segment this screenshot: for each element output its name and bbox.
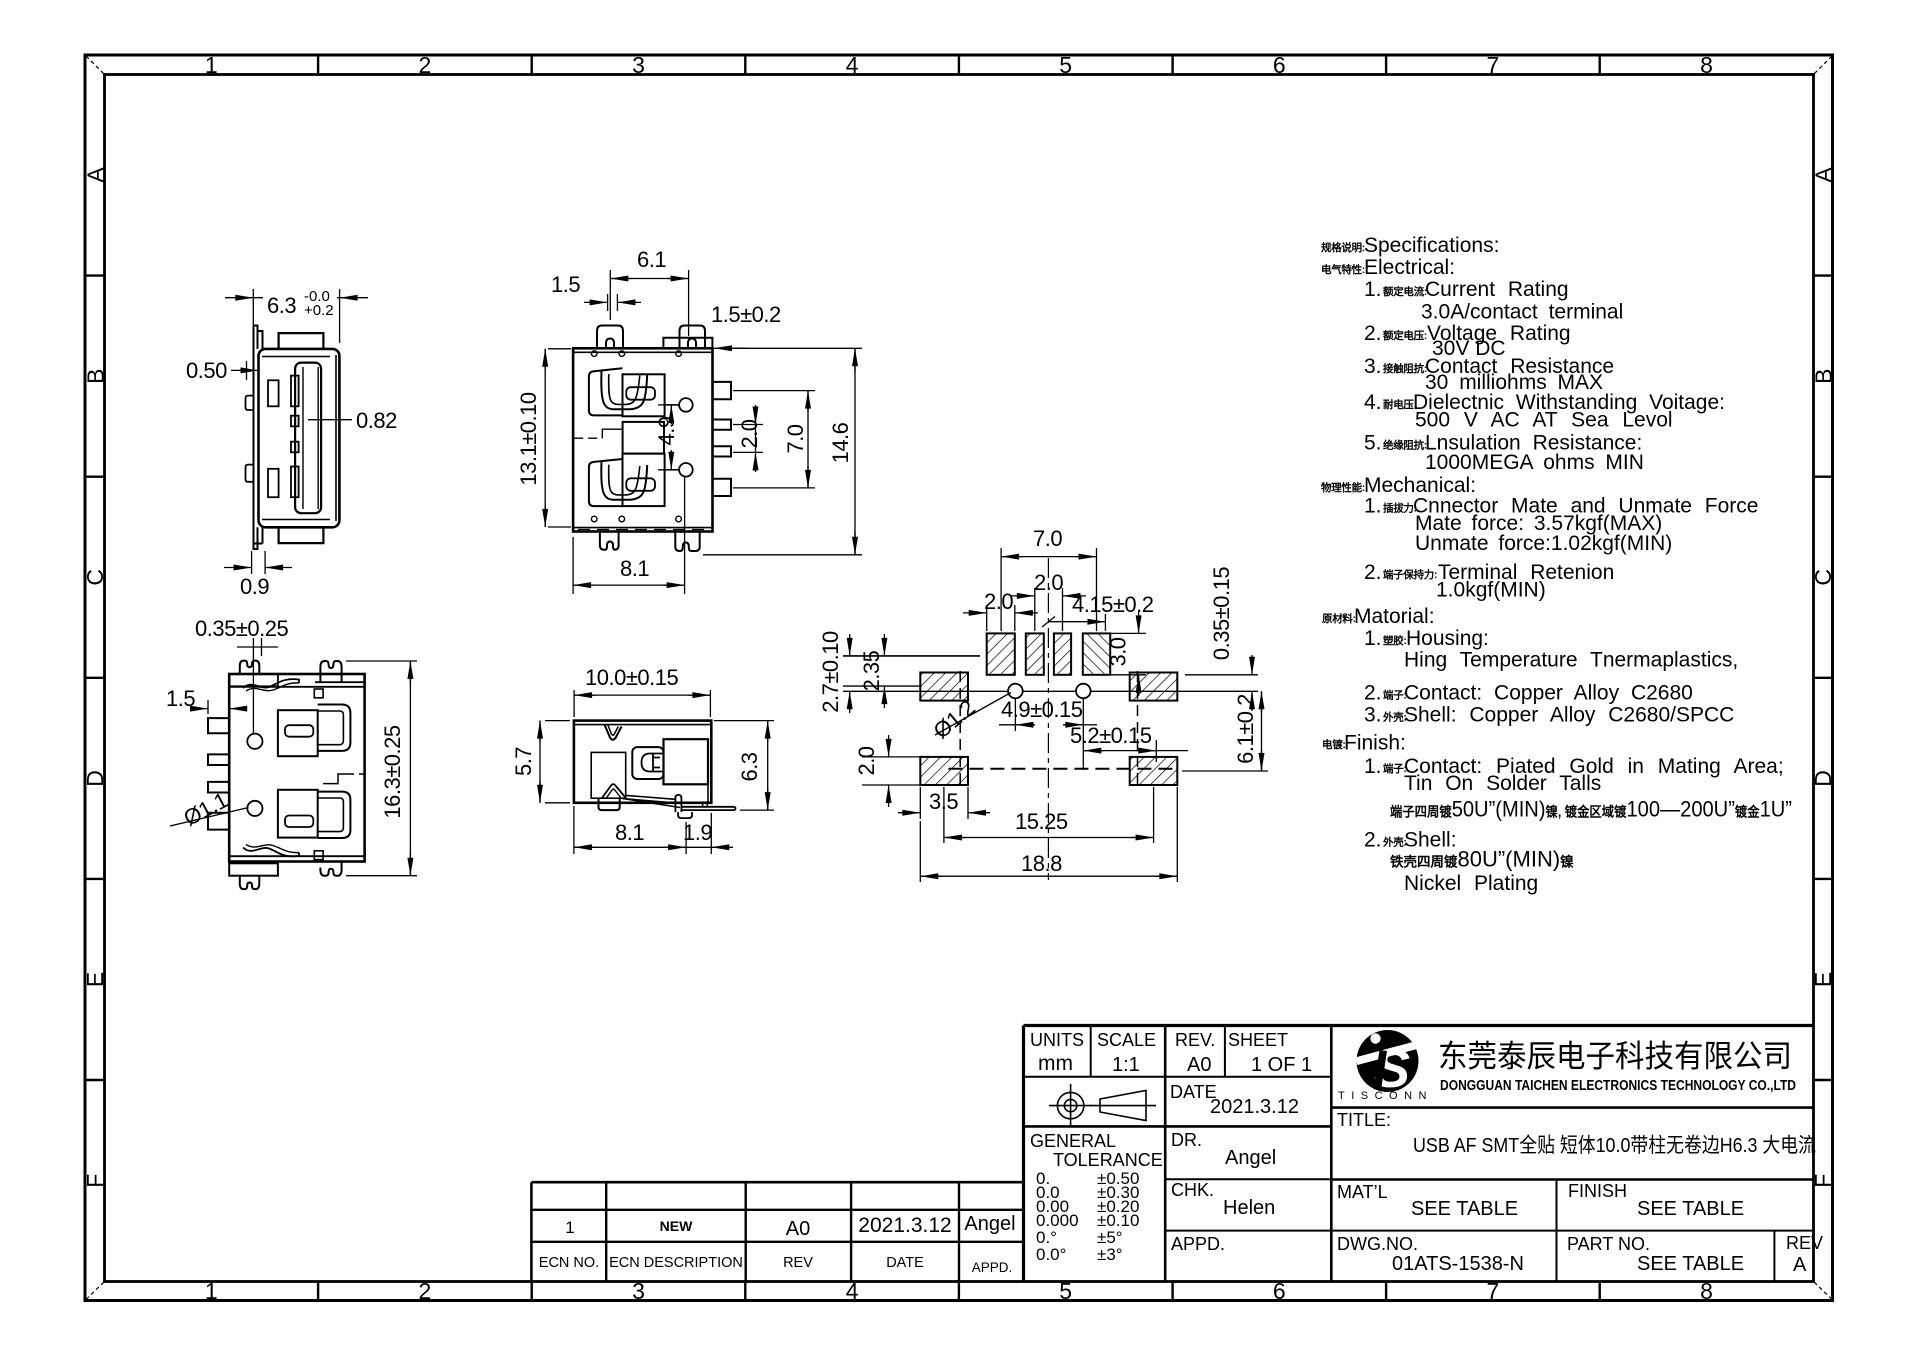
svg-text:TOLERANCE: TOLERANCE (1053, 1150, 1163, 1170)
svg-text:2.: 2. (1364, 829, 1382, 852)
svg-text:额定电压:: 额定电压: (1382, 329, 1427, 342)
svg-text:A: A (1811, 167, 1837, 183)
svg-text:TITLE:: TITLE: (1337, 1110, 1391, 1130)
svg-text:FINISH: FINISH (1568, 1181, 1627, 1201)
svg-text:DATE: DATE (886, 1255, 924, 1271)
svg-text:13.1±0.10: 13.1±0.10 (516, 392, 541, 485)
svg-text:A: A (83, 167, 109, 183)
svg-text:7.0: 7.0 (1033, 526, 1062, 551)
svg-text:插拔力:: 插拔力: (1383, 502, 1417, 515)
svg-text:REV: REV (1786, 1233, 1823, 1253)
svg-text:Tin On Solder Talls: Tin On Solder Talls (1404, 772, 1601, 795)
svg-text:2021.3.12: 2021.3.12 (858, 1214, 951, 1237)
svg-text:8.1: 8.1 (615, 820, 644, 845)
svg-text:E: E (82, 972, 108, 987)
svg-text:SEE TABLE: SEE TABLE (1637, 1253, 1744, 1275)
svg-text:4: 4 (846, 1278, 859, 1304)
svg-text:A0: A0 (1187, 1054, 1211, 1076)
svg-text:APPD.: APPD. (1171, 1234, 1225, 1254)
svg-text:电镀:: 电镀: (1322, 738, 1346, 751)
svg-text:SEE TABLE: SEE TABLE (1411, 1198, 1518, 1220)
svg-text:E: E (1810, 972, 1836, 987)
svg-text:D: D (82, 770, 108, 787)
svg-text:0.35±0.25: 0.35±0.25 (195, 616, 288, 641)
svg-text:C: C (1810, 569, 1836, 586)
svg-text:500 V AC AT Sea Levol: 500 V AC AT Sea Levol (1415, 409, 1673, 432)
svg-text:TISCONN: TISCONN (1338, 1090, 1433, 1102)
svg-text:5: 5 (1059, 1278, 1072, 1304)
svg-text:额定电流:: 额定电流: (1382, 285, 1427, 298)
svg-text:5: 5 (1059, 52, 1072, 78)
svg-text:1: 1 (565, 1218, 574, 1237)
svg-text:UNITS: UNITS (1030, 1030, 1084, 1050)
svg-text:0.82: 0.82 (356, 408, 397, 433)
svg-text:1 OF 1: 1 OF 1 (1251, 1054, 1312, 1076)
svg-text:4: 4 (846, 52, 859, 78)
svg-text:1.: 1. (1364, 495, 1382, 518)
svg-text:8.1: 8.1 (620, 556, 649, 581)
svg-text:mm: mm (1038, 1052, 1073, 1075)
svg-text:Unmate force:1.02kgf(MIN): Unmate force:1.02kgf(MIN) (1415, 532, 1672, 555)
svg-text:18.8: 18.8 (1021, 851, 1062, 876)
svg-text:2: 2 (419, 1278, 432, 1304)
svg-text:APPD.: APPD. (972, 1260, 1013, 1275)
svg-text:2.0: 2.0 (737, 419, 762, 448)
svg-text:Hing Temperature Tnermaplasti: Hing Temperature Tnermaplastics, (1404, 649, 1738, 672)
svg-text:A0: A0 (786, 1218, 810, 1240)
svg-text:Shell: Copper Alloy C2680/SPC: Shell: Copper Alloy C2680/SPCC (1404, 704, 1734, 727)
svg-text:4.9: 4.9 (654, 416, 679, 445)
svg-text:REV.: REV. (1175, 1030, 1215, 1050)
svg-text:2.: 2. (1364, 561, 1382, 584)
svg-text:Nickel Plating: Nickel Plating (1404, 872, 1538, 895)
svg-text:2.: 2. (1364, 322, 1382, 345)
svg-text:15.25: 15.25 (1015, 809, 1068, 834)
svg-text:3.0: 3.0 (1106, 637, 1131, 666)
svg-text:14.6: 14.6 (828, 422, 853, 463)
svg-text:A: A (1793, 1254, 1807, 1276)
svg-text:7: 7 (1487, 1278, 1500, 1304)
svg-text:DONGGUAN TAICHEN ELECTRONICS T: DONGGUAN TAICHEN ELECTRONICS TECHNOLOGY … (1440, 1078, 1796, 1094)
svg-text:16.3±0.25: 16.3±0.25 (380, 725, 405, 818)
svg-text:1:1: 1:1 (1112, 1054, 1140, 1076)
svg-text:0.9: 0.9 (240, 574, 269, 599)
svg-text:ECN DESCRIPTION: ECN DESCRIPTION (609, 1255, 743, 1271)
svg-text:端子保持力:: 端子保持力: (1383, 568, 1437, 581)
svg-text:电气特性:: 电气特性: (1321, 263, 1365, 276)
svg-text:6.1: 6.1 (637, 247, 666, 272)
svg-text:Angel: Angel (1225, 1147, 1276, 1169)
svg-text:3.: 3. (1364, 355, 1382, 378)
svg-text:3.0A/contact terminal: 3.0A/contact terminal (1421, 301, 1623, 324)
svg-text:2.7±0.10: 2.7±0.10 (818, 631, 843, 713)
svg-text:2.0: 2.0 (854, 746, 879, 775)
svg-text:REV: REV (783, 1255, 813, 1271)
svg-text:规格说明:: 规格说明: (1321, 241, 1365, 254)
svg-text:1.9: 1.9 (683, 820, 712, 845)
svg-text:Finish:: Finish: (1344, 732, 1406, 755)
svg-text:3: 3 (632, 1278, 645, 1304)
svg-text:1: 1 (205, 1278, 218, 1304)
svg-text:2.0: 2.0 (984, 589, 1013, 614)
svg-text:1.5: 1.5 (166, 686, 195, 711)
svg-text:+0.2: +0.2 (304, 302, 334, 319)
svg-text:1.: 1. (1364, 627, 1382, 650)
svg-text:2.: 2. (1364, 682, 1382, 705)
svg-text:Specifications:: Specifications: (1364, 234, 1499, 257)
svg-text:8: 8 (1700, 1278, 1713, 1304)
svg-text:6: 6 (1273, 1278, 1286, 1304)
svg-text:8: 8 (1700, 52, 1713, 78)
svg-text:DWG.NO.: DWG.NO. (1337, 1234, 1418, 1254)
svg-text:5.7: 5.7 (511, 747, 536, 776)
svg-text:1.5: 1.5 (551, 272, 580, 297)
svg-text:DR.: DR. (1171, 1130, 1202, 1150)
svg-text:0.0°: 0.0° (1036, 1245, 1066, 1264)
svg-text:Contact: Copper Alloy C2680: Contact: Copper Alloy C2680 (1404, 682, 1693, 705)
svg-text:1.: 1. (1364, 278, 1382, 301)
svg-text:7: 7 (1487, 52, 1500, 78)
svg-text:接触阻抗:: 接触阻抗: (1383, 362, 1427, 375)
svg-text:0.35±0.15: 0.35±0.15 (1209, 567, 1234, 660)
svg-text:Helen: Helen (1223, 1197, 1275, 1219)
svg-text:D: D (1810, 770, 1836, 787)
svg-text:物理性能:: 物理性能: (1321, 481, 1365, 494)
svg-text:ECN NO.: ECN NO. (539, 1255, 599, 1271)
svg-text:1.: 1. (1364, 755, 1382, 778)
svg-text:原材料:: 原材料: (1322, 612, 1356, 625)
svg-text:4.15±0.2: 4.15±0.2 (1072, 592, 1154, 617)
svg-text:东莞泰辰电子科技有限公司: 东莞泰辰电子科技有限公司 (1438, 1039, 1792, 1074)
svg-text:F: F (1810, 1174, 1836, 1188)
svg-text:4.9±0.15: 4.9±0.15 (1001, 697, 1083, 722)
svg-text:2.0: 2.0 (1034, 570, 1063, 595)
svg-text:耐电压:: 耐电压: (1383, 398, 1417, 411)
svg-text:SCALE: SCALE (1097, 1030, 1156, 1050)
svg-text:Angel: Angel (964, 1213, 1015, 1235)
svg-text:Matorial:: Matorial: (1354, 605, 1435, 628)
svg-text:3: 3 (632, 52, 645, 78)
svg-text:2.35: 2.35 (859, 650, 884, 691)
svg-text:C: C (82, 569, 108, 586)
svg-text:6.3: 6.3 (267, 293, 296, 318)
svg-text:2: 2 (419, 52, 432, 78)
svg-text:1: 1 (205, 52, 218, 78)
svg-text:1.5±0.2: 1.5±0.2 (711, 302, 781, 327)
svg-text:Current Rating: Current Rating (1425, 278, 1569, 301)
svg-text:6.3: 6.3 (737, 752, 762, 781)
svg-text:F: F (82, 1174, 108, 1188)
svg-text:CHK.: CHK. (1171, 1180, 1214, 1200)
svg-text:Shell:: Shell: (1404, 829, 1457, 852)
svg-text:外壳:: 外壳: (1382, 836, 1407, 849)
svg-text:塑胶:: 塑胶: (1383, 634, 1407, 647)
svg-text:B: B (1810, 369, 1836, 384)
svg-text:5.: 5. (1364, 432, 1382, 455)
svg-text:Housing:: Housing: (1406, 627, 1489, 650)
svg-text:10.0±0.15: 10.0±0.15 (585, 665, 678, 690)
svg-text:4.: 4. (1364, 391, 1382, 414)
svg-text:GENERAL: GENERAL (1030, 1131, 1116, 1151)
svg-text:绝缘阻抗:: 绝缘阻抗: (1383, 439, 1427, 452)
svg-text:0.50: 0.50 (186, 358, 227, 383)
svg-text:6.1±0.2: 6.1±0.2 (1233, 694, 1258, 764)
svg-text:1000MEGA ohms MIN: 1000MEGA ohms MIN (1425, 451, 1644, 474)
svg-text:01ATS-1538-N: 01ATS-1538-N (1392, 1253, 1524, 1275)
svg-text:5.2±0.15: 5.2±0.15 (1070, 723, 1152, 748)
svg-text:±3°: ±3° (1097, 1245, 1123, 1264)
svg-text:MAT’L: MAT’L (1337, 1182, 1388, 1202)
svg-text:B: B (82, 369, 108, 384)
svg-text:Electrical:: Electrical: (1364, 256, 1455, 279)
svg-text:1.0kgf(MIN): 1.0kgf(MIN) (1436, 579, 1546, 602)
svg-text:USB AF SMT全贴 短体10.0带柱无卷边H6.3: USB AF SMT全贴 短体10.0带柱无卷边H6.3 大电流 (1413, 1134, 1816, 1157)
svg-text:外壳:: 外壳: (1382, 711, 1407, 724)
svg-text:NEW: NEW (660, 1218, 693, 1234)
svg-text:7.0: 7.0 (783, 424, 808, 453)
svg-text:6: 6 (1273, 52, 1286, 78)
svg-text:3.: 3. (1364, 704, 1382, 727)
svg-text:2021.3.12: 2021.3.12 (1210, 1096, 1299, 1118)
svg-text:PART NO.: PART NO. (1567, 1234, 1650, 1254)
svg-text:SHEET: SHEET (1228, 1030, 1288, 1050)
svg-text:SEE TABLE: SEE TABLE (1637, 1198, 1744, 1220)
